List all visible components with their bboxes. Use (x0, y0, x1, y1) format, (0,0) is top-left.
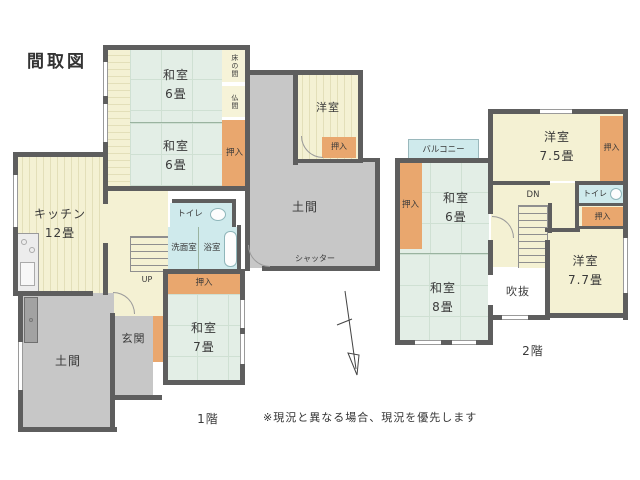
closet-oshiire-toilet-2f: 押入 (582, 207, 623, 227)
closet-label: 押入 (402, 199, 419, 212)
room-toilet-1f: トイレ (170, 203, 232, 227)
wall-segment (375, 158, 380, 270)
closet-yoshitsu-1f: 押入 (322, 137, 356, 158)
room-label: 土間 (285, 198, 325, 216)
room-label: 和室 (163, 137, 189, 156)
wall-segment (488, 181, 550, 185)
room-label: 洋室 (316, 99, 340, 116)
room-label: 浴室 (201, 243, 223, 255)
room-washitsu7: 和室 7畳 (166, 294, 242, 382)
closet-oshiire-2f-left: 押入 (399, 163, 422, 249)
wall-segment (103, 186, 248, 191)
floor1-label: 1階 (188, 411, 228, 427)
window-marker (623, 238, 628, 293)
partition-line (198, 227, 199, 271)
room-label: 土間 (55, 352, 81, 371)
room-label: 和室 (163, 66, 189, 85)
window-marker (240, 334, 245, 364)
wall-segment (18, 427, 117, 432)
room-label: 洋室 (572, 252, 598, 271)
room-size-label: 7畳 (193, 338, 215, 357)
toilet-icon (610, 188, 622, 200)
room-engawa-corridor (106, 48, 130, 188)
wall-segment (262, 266, 380, 271)
area-label: 吹抜 (506, 283, 530, 300)
wall-segment (172, 199, 234, 203)
closet-label: 押入 (595, 211, 611, 223)
wall-segment (293, 70, 363, 75)
floor2-label: 2階 (513, 343, 553, 359)
closet-label: 押入 (195, 277, 212, 290)
room-size-label: 6畳 (165, 85, 187, 104)
wall-segment (163, 380, 245, 385)
room-yoshitsu77: 洋室 7.7畳 (548, 228, 623, 313)
closet-label: 押入 (604, 142, 620, 154)
page-title: 間取図 (27, 47, 87, 72)
north-arrow-icon (328, 285, 370, 385)
wall-segment (578, 203, 624, 206)
window-marker (502, 315, 528, 320)
room-label-group: 和室 6畳 (427, 183, 485, 233)
wall-segment (245, 45, 250, 271)
room-size-label: 8畳 (432, 298, 454, 317)
toilet-icon (210, 208, 226, 221)
wall-segment (293, 70, 298, 165)
wall-segment (18, 291, 93, 296)
window-marker (540, 109, 572, 114)
wall-segment (575, 182, 579, 230)
stove-burner-icon (29, 247, 35, 253)
room-washitsu6-top: 和室 6畳 (130, 48, 222, 122)
shutter-label: シャッター (292, 254, 338, 264)
room-toilet-2f: トイレ (578, 185, 624, 204)
bathtub-icon (224, 231, 237, 267)
room-label: 洋室 (544, 128, 570, 147)
window-marker (103, 104, 108, 142)
wall-segment (358, 70, 363, 163)
wall-segment (293, 159, 363, 163)
window-marker (452, 340, 476, 345)
wall-segment (103, 243, 108, 295)
room-label: トイレ (581, 189, 609, 200)
wall-segment (358, 158, 380, 162)
wall-segment (578, 226, 624, 229)
closet-oshiire-75: 押入 (600, 116, 623, 181)
wall-segment (110, 395, 162, 400)
room-label: 洗面室 (170, 243, 198, 255)
room-size-label: 6畳 (165, 156, 187, 175)
room-label: 和室 (443, 189, 469, 208)
cabinet-knob-icon (29, 318, 33, 322)
room-label: 玄関 (122, 330, 146, 347)
area-fukinuke: 吹抜 (491, 268, 545, 315)
disclaimer-note: ※現況と異なる場合、現況を優先します (263, 409, 477, 425)
window-marker (13, 175, 18, 227)
window-marker (18, 342, 23, 390)
stairs-up-label: UP (136, 275, 158, 286)
room-size-label: 7.5畳 (539, 147, 574, 166)
closet-label: 押入 (226, 147, 243, 160)
wall-segment (395, 340, 493, 345)
room-senmen-bath: 洗面室 浴室 (168, 227, 240, 271)
room-washitsu6-mid: 和室 6畳 (130, 122, 222, 188)
wall-segment (395, 158, 493, 163)
floorplan-canvas: 間取図 和室 6畳 和室 6畳 床の間 仏間 押入 土間 シャッター 洋室 押入… (0, 0, 640, 480)
wall-segment (232, 199, 236, 227)
room-label: トイレ (175, 209, 205, 221)
room-label: キッチン (34, 205, 86, 224)
area-label: バルコニー (422, 144, 464, 157)
alcove-butsuma: 仏間 (222, 86, 247, 117)
wall-segment (488, 250, 493, 275)
room-size-label: 12畳 (45, 224, 75, 243)
wall-segment (237, 225, 241, 271)
room-washitsu8: 和室 8畳 (398, 253, 488, 341)
window-marker (103, 62, 108, 96)
wall-segment (548, 203, 552, 233)
closet-oshiire-main: 押入 (222, 120, 247, 188)
wall-segment (163, 269, 168, 385)
closet-oshiire-w7: 押入 (166, 273, 242, 294)
wall-segment (245, 70, 297, 75)
room-genkan: 玄関 (114, 316, 153, 398)
wall-segment (103, 152, 108, 204)
wall-segment (13, 152, 108, 157)
room-size-label: 6畳 (445, 208, 467, 227)
window-marker (415, 340, 441, 345)
wall-segment (545, 240, 550, 318)
stove-burner-icon (21, 239, 27, 245)
area-doma-upper (247, 75, 295, 165)
kitchen-counter (16, 233, 39, 293)
room-label: 和室 (191, 319, 217, 338)
wall-segment (575, 181, 628, 185)
stairs-down-label: DN (522, 190, 544, 201)
wall-segment (488, 305, 493, 345)
alcove-tokonoma: 床の間 (222, 50, 247, 82)
kitchen-sink-icon (20, 262, 35, 286)
wall-segment (163, 269, 245, 274)
alcove-label: 床の間 (229, 54, 240, 78)
closet-label: 押入 (331, 141, 347, 153)
storage-cabinet (24, 297, 38, 343)
room-size-label: 7.7畳 (568, 271, 603, 290)
room-label: 和室 (430, 279, 456, 298)
alcove-label: 仏間 (229, 94, 240, 110)
wall-segment (395, 158, 400, 345)
wall-segment (103, 45, 250, 50)
window-marker (240, 300, 245, 328)
wall-segment (110, 313, 115, 432)
wall-segment (545, 313, 628, 318)
